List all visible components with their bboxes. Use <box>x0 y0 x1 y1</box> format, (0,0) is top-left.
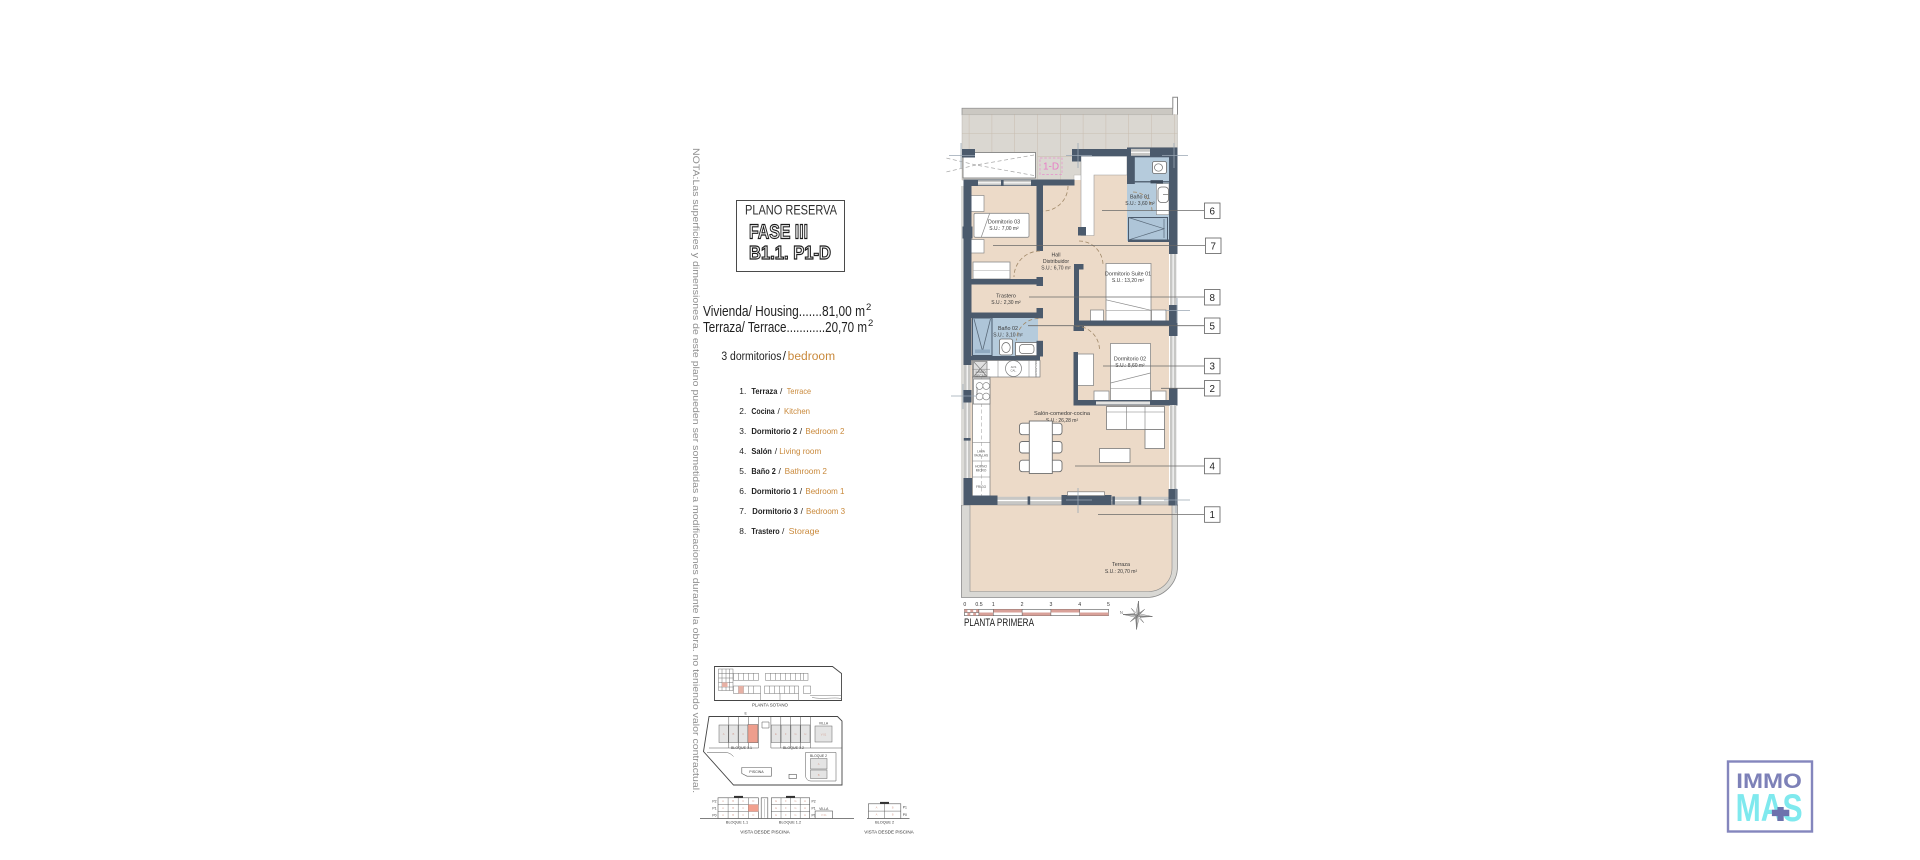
svg-text:NOTA:Las superficies y dimensi: NOTA:Las superficies y dimensiones de es… <box>691 148 701 793</box>
svg-text:FREGADERO: FREGADERO <box>1034 360 1038 379</box>
svg-text:PLANO RESERVA: PLANO RESERVA <box>745 202 838 218</box>
svg-text:BLOQUE 1.2: BLOQUE 1.2 <box>779 821 801 825</box>
svg-text:2.: 2. <box>739 406 746 416</box>
svg-text:C: C <box>742 813 744 817</box>
svg-text:A: A <box>722 813 724 817</box>
svg-text:H: H <box>804 799 806 803</box>
svg-text:5: 5 <box>1209 321 1215 332</box>
svg-text:3.: 3. <box>739 426 746 436</box>
svg-text:MAS: MAS <box>1736 787 1803 830</box>
svg-text:VITRO.: VITRO. <box>975 387 979 396</box>
svg-text:Terraza/ Terrace............20: Terraza/ Terrace............20,70 m <box>703 320 867 336</box>
svg-text:/: / <box>800 486 803 496</box>
svg-text:PLANTA SOTANO: PLANTA SOTANO <box>752 703 789 708</box>
svg-text:S.U.: 2,30 m²: S.U.: 2,30 m² <box>991 300 1021 306</box>
svg-text:/: / <box>782 526 785 536</box>
svg-text:Storage: Storage <box>789 526 820 536</box>
svg-text:E: E <box>775 806 777 810</box>
svg-text:Distribuidor: Distribuidor <box>1043 259 1070 265</box>
svg-text:P1: P1 <box>712 806 716 810</box>
svg-text:H: H <box>804 813 806 817</box>
svg-text:bedroom: bedroom <box>788 351 835 363</box>
svg-text:Dormitorio 03: Dormitorio 03 <box>988 220 1020 226</box>
svg-text:2: 2 <box>866 302 871 313</box>
svg-text:/: / <box>778 406 781 416</box>
svg-text:/: / <box>800 426 803 436</box>
svg-text:B: B <box>732 799 734 803</box>
svg-text:Salón-comedor-cocina: Salón-comedor-cocina <box>1034 411 1091 417</box>
svg-text:3 dormitorios: 3 dormitorios <box>721 351 781 363</box>
svg-text:P0: P0 <box>903 813 907 817</box>
svg-text:N: N <box>1120 610 1123 615</box>
svg-text:Dormitorio 3: Dormitorio 3 <box>752 506 798 516</box>
svg-text:/: / <box>783 351 787 363</box>
svg-text:Dormitorio 1: Dormitorio 1 <box>751 486 797 496</box>
svg-text:Trastero: Trastero <box>996 294 1016 300</box>
svg-text:Dormitorio 2: Dormitorio 2 <box>751 426 797 436</box>
svg-text:3: 3 <box>1049 602 1052 608</box>
svg-text:A: A <box>876 813 878 817</box>
svg-text:B: B <box>892 813 894 817</box>
svg-text:6.: 6. <box>739 486 746 496</box>
svg-text:V 01: V 01 <box>821 813 827 817</box>
svg-text:C: C <box>742 799 744 803</box>
svg-text:2: 2 <box>868 318 873 329</box>
svg-text:S.U.: 20,70 m²: S.U.: 20,70 m² <box>1105 569 1138 575</box>
svg-text:V 01: V 01 <box>821 733 827 737</box>
svg-text:BLOQUE 2: BLOQUE 2 <box>810 754 827 758</box>
svg-text:Vivienda/ Housing.......81,00: Vivienda/ Housing.......81,00 m <box>703 304 865 320</box>
svg-text:3: 3 <box>1209 362 1215 373</box>
svg-text:H: H <box>804 806 806 810</box>
svg-text:5: 5 <box>1107 602 1110 608</box>
svg-text:7.: 7. <box>739 506 746 516</box>
svg-text:D: D <box>752 813 754 817</box>
svg-text:Bedroom 1: Bedroom 1 <box>805 486 844 496</box>
svg-text:E: E <box>775 813 777 817</box>
svg-text:Dormitorio Suite 01: Dormitorio Suite 01 <box>1105 272 1151 278</box>
svg-text:0.5: 0.5 <box>975 602 982 608</box>
svg-text:2: 2 <box>1209 384 1214 395</box>
svg-text:A: A <box>723 732 725 736</box>
svg-text:C: C <box>742 732 744 736</box>
svg-text:VILLA: VILLA <box>819 807 829 811</box>
svg-text:CAL.: CAL. <box>1011 368 1017 372</box>
svg-text:Salón: Salón <box>751 446 772 456</box>
svg-text:BLOQUE 1.1: BLOQUE 1.1 <box>726 821 748 825</box>
svg-text:PISCINA: PISCINA <box>749 770 764 774</box>
svg-text:A: A <box>722 806 724 810</box>
svg-text:P0: P0 <box>712 813 716 817</box>
svg-text:Cocina: Cocina <box>751 406 775 416</box>
svg-text:Dormitorio 02: Dormitorio 02 <box>1114 357 1146 363</box>
svg-text:B1.1. P1-D: B1.1. P1-D <box>749 242 831 263</box>
svg-text:Hall: Hall <box>1052 253 1061 259</box>
svg-text:A: A <box>876 805 878 809</box>
svg-text:4.: 4. <box>739 446 746 456</box>
svg-text:8: 8 <box>1209 293 1215 304</box>
svg-text:1: 1 <box>992 602 995 608</box>
svg-text:G: G <box>794 732 796 736</box>
svg-text:/: / <box>775 446 778 456</box>
svg-text:Bathroom 2: Bathroom 2 <box>785 466 828 476</box>
svg-text:B: B <box>733 732 735 736</box>
svg-text:VILLA: VILLA <box>819 722 829 726</box>
svg-text:/: / <box>780 386 783 396</box>
svg-text:D: D <box>752 799 754 803</box>
svg-text:Terraza: Terraza <box>751 386 777 396</box>
svg-text:7: 7 <box>1210 241 1215 252</box>
svg-text:Terraza: Terraza <box>1112 562 1130 568</box>
svg-text:E: E <box>775 732 777 736</box>
svg-text:/: / <box>801 506 804 516</box>
svg-text:B: B <box>818 773 820 777</box>
svg-text:Bedroom 2: Bedroom 2 <box>805 426 844 436</box>
svg-text:E: E <box>775 799 777 803</box>
svg-text:FRIGO: FRIGO <box>976 485 987 489</box>
svg-text:VISTA DESDE PISCINA: VISTA DESDE PISCINA <box>864 830 914 835</box>
svg-text:Living room: Living room <box>779 446 821 456</box>
svg-text:SECAD.: SECAD. <box>975 374 987 378</box>
svg-text:B: B <box>732 813 734 817</box>
svg-text:G: G <box>794 806 796 810</box>
svg-text:/: / <box>779 466 782 476</box>
svg-text:A: A <box>722 799 724 803</box>
svg-text:B: B <box>732 806 734 810</box>
svg-text:A: A <box>818 762 820 766</box>
svg-text:BLOQUE 1.1: BLOQUE 1.1 <box>731 746 752 750</box>
svg-text:6: 6 <box>1209 206 1215 217</box>
svg-text:E: E <box>745 712 748 716</box>
svg-text:1-D: 1-D <box>1043 162 1059 173</box>
svg-text:Baño 01: Baño 01 <box>1130 195 1150 201</box>
svg-text:Bedroom 3: Bedroom 3 <box>806 506 845 516</box>
svg-text:Terrace: Terrace <box>787 386 811 396</box>
svg-text:2: 2 <box>1021 602 1024 608</box>
svg-text:MICRO: MICRO <box>976 469 987 473</box>
svg-text:4: 4 <box>1078 602 1081 608</box>
svg-text:Kitchen: Kitchen <box>784 406 810 416</box>
svg-text:P1: P1 <box>812 806 816 810</box>
svg-text:S.U.: 6,70 m²: S.U.: 6,70 m² <box>1041 266 1071 272</box>
svg-text:1.: 1. <box>739 386 746 396</box>
svg-text:G: G <box>794 813 796 817</box>
svg-text:BLOQUE 2: BLOQUE 2 <box>875 821 894 825</box>
svg-text:BLOQUE 1.2: BLOQUE 1.2 <box>783 746 804 750</box>
svg-text:P1: P1 <box>903 806 907 810</box>
svg-text:4: 4 <box>1209 462 1215 473</box>
svg-text:VAJILLAS: VAJILLAS <box>974 454 988 458</box>
svg-text:Baño 2: Baño 2 <box>751 466 776 476</box>
svg-text:H: H <box>804 732 806 736</box>
svg-text:S.U.: 3,10 m²: S.U.: 3,10 m² <box>993 333 1023 339</box>
svg-text:S.U.: 13,20 m²: S.U.: 13,20 m² <box>1112 278 1145 284</box>
svg-text:S.U.: 7,00 m²: S.U.: 7,00 m² <box>989 226 1019 232</box>
svg-text:FASE III: FASE III <box>749 222 808 244</box>
svg-text:5.: 5. <box>739 466 746 476</box>
svg-text:0: 0 <box>963 602 966 608</box>
svg-text:PLANTA PRIMERA: PLANTA PRIMERA <box>964 617 1035 629</box>
svg-text:P2: P2 <box>812 800 816 804</box>
svg-text:Trastero: Trastero <box>751 526 779 536</box>
svg-text:8.: 8. <box>739 526 746 536</box>
svg-text:P2: P2 <box>712 800 716 804</box>
svg-text:Baño 02: Baño 02 <box>998 326 1018 332</box>
svg-text:B: B <box>892 805 894 809</box>
svg-text:G: G <box>794 799 796 803</box>
svg-text:C: C <box>742 806 744 810</box>
svg-text:1: 1 <box>1209 510 1214 521</box>
svg-text:VISTA DESDE PISCINA: VISTA DESDE PISCINA <box>740 830 790 835</box>
